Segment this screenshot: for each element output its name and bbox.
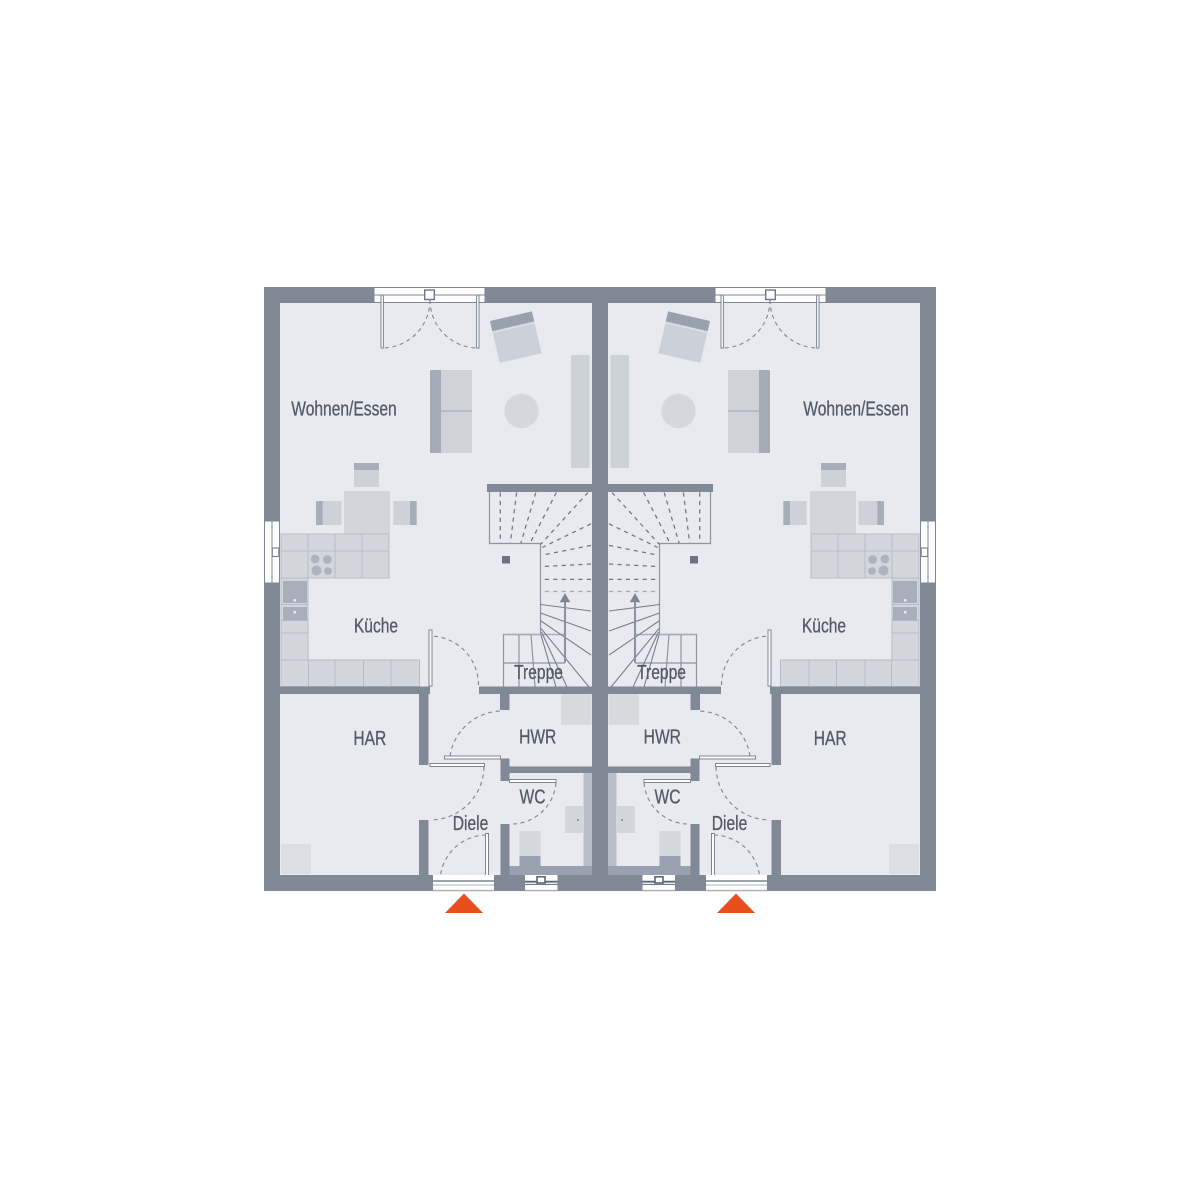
svg-text:HWR: HWR xyxy=(644,726,681,748)
svg-text:Küche: Küche xyxy=(354,615,398,637)
svg-text:WC: WC xyxy=(655,786,681,808)
svg-text:Treppe: Treppe xyxy=(514,661,563,683)
svg-text:Wohnen/Essen: Wohnen/Essen xyxy=(291,398,396,420)
svg-text:Küche: Küche xyxy=(802,615,846,637)
svg-text:HWR: HWR xyxy=(519,726,556,748)
svg-text:Treppe: Treppe xyxy=(637,661,686,683)
svg-text:Diele: Diele xyxy=(453,812,489,834)
svg-text:Diele: Diele xyxy=(712,812,748,834)
svg-text:HAR: HAR xyxy=(353,727,386,749)
svg-text:HAR: HAR xyxy=(814,727,847,749)
svg-text:WC: WC xyxy=(520,786,546,808)
svg-text:Wohnen/Essen: Wohnen/Essen xyxy=(803,398,908,420)
